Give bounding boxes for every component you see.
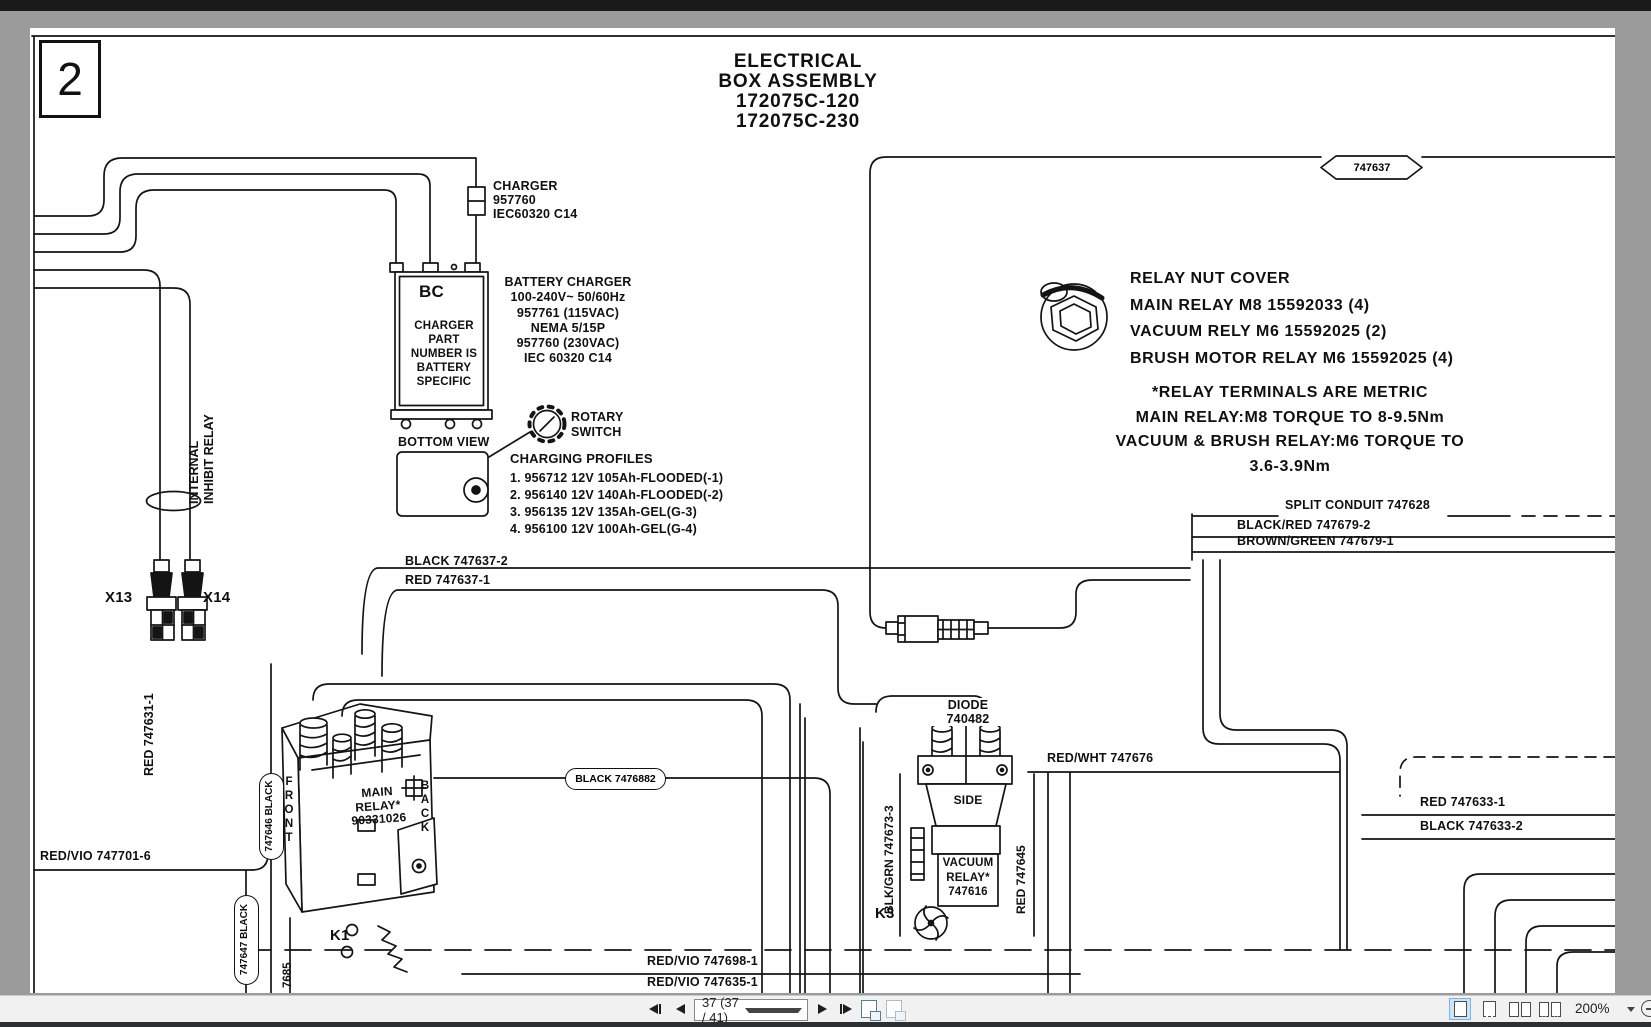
vacuum-relay-k3 — [876, 696, 1034, 940]
split-conduit-label: SPLIT CONDUIT 747628 — [1283, 499, 1432, 513]
main-relay-k1 — [282, 704, 437, 972]
relay-nut-cover-note: RELAY NUT COVER MAIN RELAY M8 15592033 (… — [1130, 266, 1454, 372]
charger-fuse-note: CHARGER 957760 IEC60320 C14 — [493, 179, 577, 221]
zoom-dropdown-caret-icon[interactable] — [1627, 1007, 1635, 1012]
red-747631-label: RED 747631-1 — [142, 693, 156, 776]
continuous-facing-view-button[interactable] — [1536, 998, 1564, 1020]
sheet-number: 2 — [39, 40, 101, 118]
brown-green-wire-label: BROWN/GREEN 747679-1 — [1237, 535, 1394, 549]
pdf-viewer-window: 2 ELECTRICAL BOX ASSEMBLY 172075C-120 17… — [0, 0, 1651, 1027]
first-page-button[interactable] — [645, 1002, 665, 1016]
continuous-view-button[interactable] — [1478, 998, 1500, 1020]
wire-tag-black-7476882: BLACK 7476882 — [565, 768, 666, 790]
k1-label: K1 — [330, 928, 350, 944]
zoom-level[interactable]: 200% — [1575, 1001, 1610, 1016]
window-top-edge — [0, 0, 1651, 11]
previous-page-button[interactable] — [673, 1002, 687, 1016]
next-page-button[interactable] — [815, 1002, 829, 1016]
single-page-icon — [1454, 1001, 1467, 1017]
window-bottom-edge — [0, 1022, 1651, 1027]
single-page-view-button[interactable] — [1449, 998, 1471, 1020]
previous-page-icon — [676, 1004, 685, 1014]
battery-charger-note: BATTERY CHARGER 100-240V~ 50/60Hz 957761… — [492, 275, 644, 367]
red-747645-label: RED 747645 — [1014, 845, 1028, 914]
rotary-switch-label: ROTARY SWITCH — [571, 410, 624, 440]
zoom-out-button[interactable] — [1641, 1000, 1651, 1017]
vacuum-relay-label: VACUUM RELAY* 747616 — [938, 856, 998, 900]
wire-7685-label: 7685 — [282, 962, 294, 988]
black-747637-2-label: BLACK 747637-2 — [405, 555, 508, 569]
wire-tag-747646-black: 747646 BLACK — [259, 773, 284, 860]
front-label: FRONT — [283, 776, 295, 846]
viewer-toolbar: 37 (37 / 41) 200% — [0, 995, 1651, 1023]
facing-view-button[interactable] — [1506, 998, 1534, 1020]
internal-inhibit-relay-label: INTERNAL INHIBIT RELAY — [187, 414, 217, 504]
last-page-button[interactable] — [836, 1002, 856, 1016]
next-view-icon[interactable] — [886, 1000, 902, 1018]
continuous-page-icon — [1483, 1001, 1496, 1017]
rotary-switch-icon — [530, 407, 565, 442]
diode-label: DIODE 740482 — [932, 698, 1004, 726]
fan-icon — [914, 906, 948, 940]
black-747633-2-label: BLACK 747633-2 — [1420, 820, 1523, 834]
blk-grn-747673-label: BLK/GRN 747673-3 — [882, 805, 896, 914]
next-page-icon — [818, 1004, 827, 1014]
page-dropdown-caret-icon — [745, 1008, 803, 1013]
back-label: BACK — [419, 780, 431, 836]
facing-pages-icon — [1509, 1002, 1531, 1017]
red-747633-1-label: RED 747633-1 — [1420, 796, 1505, 810]
charger-fuse-symbol — [468, 187, 485, 215]
main-relay-label: MAIN RELAY* 90331026 — [341, 784, 416, 829]
connector-x13-label: X13 — [105, 590, 132, 606]
side-label: SIDE — [943, 794, 993, 807]
inline-connector — [886, 616, 988, 642]
bc-note: CHARGER PART NUMBER IS BATTERY SPECIFIC — [400, 319, 488, 389]
drawing-title: ELECTRICAL BOX ASSEMBLY 172075C-120 1720… — [648, 52, 948, 132]
connector-x13 — [147, 560, 176, 640]
page-number-field[interactable]: 37 (37 / 41) — [694, 999, 808, 1021]
zoom-out-icon — [1646, 1008, 1651, 1010]
first-page-icon — [649, 1004, 658, 1014]
continuous-facing-icon — [1539, 1002, 1561, 1017]
wire-tag-747647-black: 747647 BLACK — [234, 895, 259, 985]
previous-view-icon[interactable] — [861, 1000, 877, 1018]
relay-nut-cover-icon — [1041, 283, 1107, 350]
connector-x14-label: X14 — [203, 590, 230, 606]
bc-label: BC — [419, 283, 444, 301]
red-wht-747676-label: RED/WHT 747676 — [1047, 752, 1153, 766]
red-vio-747635-label: RED/VIO 747635-1 — [647, 976, 758, 990]
last-page-icon — [843, 1004, 852, 1014]
red-747637-1-label: RED 747637-1 — [405, 574, 490, 588]
bottom-view-label: BOTTOM VIEW — [398, 436, 488, 450]
charging-profiles-title: CHARGING PROFILES — [510, 452, 653, 466]
red-vio-747698-label: RED/VIO 747698-1 — [647, 955, 758, 969]
wire-tag-747637: 747637 — [1326, 159, 1418, 177]
charging-profiles-list: 1. 956712 12V 105Ah-FLOODED(-1) 2. 95614… — [510, 470, 723, 538]
black-red-wire-label: BLACK/RED 747679-2 — [1237, 519, 1371, 533]
document-page[interactable]: 2 ELECTRICAL BOX ASSEMBLY 172075C-120 17… — [30, 28, 1615, 993]
red-vio-747701-label: RED/VIO 747701-6 — [40, 850, 151, 864]
relay-torque-note: *RELAY TERMINALS ARE METRIC MAIN RELAY:M… — [1070, 381, 1510, 479]
